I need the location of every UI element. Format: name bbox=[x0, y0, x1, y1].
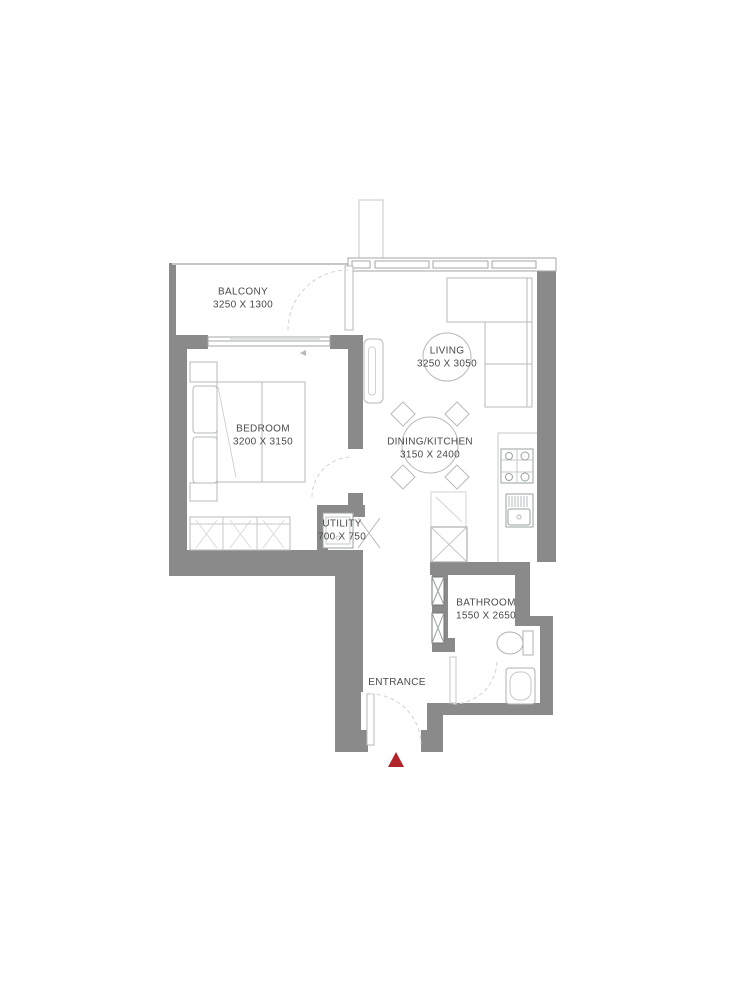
bathroom-door-arc bbox=[453, 660, 497, 704]
room-name: BATHROOM bbox=[456, 598, 516, 611]
balcony-door-arc bbox=[288, 270, 348, 330]
room-dims: 700 X 750 bbox=[318, 531, 366, 544]
room-label-bathroom: BATHROOM 1550 X 2650 bbox=[456, 598, 516, 623]
room-dims: 1550 X 2650 bbox=[456, 610, 516, 623]
room-label-dining-kitchen: DINING/KITCHEN 3150 X 2400 bbox=[387, 437, 473, 462]
wall bbox=[540, 616, 553, 715]
room-dims: 3250 X 1300 bbox=[213, 299, 273, 312]
vanity-sink-icon bbox=[506, 668, 535, 704]
stove-icon bbox=[501, 449, 533, 483]
bedroom-window bbox=[208, 337, 330, 346]
wall bbox=[169, 335, 208, 349]
wall bbox=[169, 349, 187, 552]
direction-tick-icon bbox=[300, 350, 306, 356]
room-name: BEDROOM bbox=[233, 424, 293, 437]
window-band bbox=[348, 258, 556, 271]
wall bbox=[537, 268, 556, 562]
dining-chair-icon bbox=[391, 402, 415, 426]
room-label-entrance: ENTRANCE bbox=[368, 677, 425, 690]
bathroom-door-leaf bbox=[450, 657, 456, 703]
room-label-bedroom: BEDROOM 3200 X 3150 bbox=[233, 424, 293, 449]
dining-chair-icon bbox=[391, 465, 415, 489]
wall bbox=[348, 335, 363, 449]
bedroom-door-arc bbox=[312, 457, 352, 497]
entrance-door-leaf bbox=[367, 694, 374, 745]
room-label-utility: UTILITY 700 X 750 bbox=[318, 519, 366, 544]
wall bbox=[335, 576, 363, 752]
kitchen-sink-icon bbox=[506, 494, 533, 527]
room-label-living: LIVING 3250 X 3050 bbox=[417, 346, 477, 371]
room-dims: 3250 X 3050 bbox=[417, 358, 477, 371]
fridge-icon bbox=[431, 492, 466, 527]
toilet-icon bbox=[497, 631, 533, 655]
service-shaft bbox=[359, 200, 383, 260]
room-dims: 3150 X 2400 bbox=[387, 449, 473, 462]
room-name: ENTRANCE bbox=[368, 677, 425, 690]
wall bbox=[169, 263, 176, 336]
pillow-icon bbox=[193, 437, 217, 483]
floor-plan: BALCONY 3250 X 1300 LIVING 3250 X 3050 B… bbox=[0, 0, 731, 1000]
room-name: BALCONY bbox=[213, 287, 273, 300]
wall bbox=[421, 730, 440, 752]
room-name: LIVING bbox=[417, 346, 477, 359]
dining-chair-icon bbox=[445, 402, 469, 426]
duct-shaft-x-icon bbox=[431, 527, 467, 562]
wall bbox=[335, 730, 368, 752]
room-label-balcony: BALCONY 3250 X 1300 bbox=[213, 287, 273, 312]
room-name: DINING/KITCHEN bbox=[387, 437, 473, 450]
balcony-door-leaf bbox=[345, 266, 353, 330]
floor-plan-canvas bbox=[0, 0, 731, 1000]
wall bbox=[515, 562, 530, 620]
pillow-icon bbox=[193, 386, 217, 433]
dining-chair-icon bbox=[445, 465, 469, 489]
entrance-marker-icon bbox=[388, 752, 404, 767]
wall bbox=[443, 703, 553, 715]
entrance-door-arc bbox=[370, 694, 421, 745]
nightstand-icon bbox=[190, 483, 217, 501]
room-name: UTILITY bbox=[318, 519, 366, 532]
nightstand-icon bbox=[190, 362, 217, 382]
room-dims: 3200 X 3150 bbox=[233, 436, 293, 449]
wall bbox=[169, 550, 363, 576]
wardrobe-icon bbox=[190, 517, 290, 550]
mirror-unit-icon bbox=[364, 339, 383, 403]
